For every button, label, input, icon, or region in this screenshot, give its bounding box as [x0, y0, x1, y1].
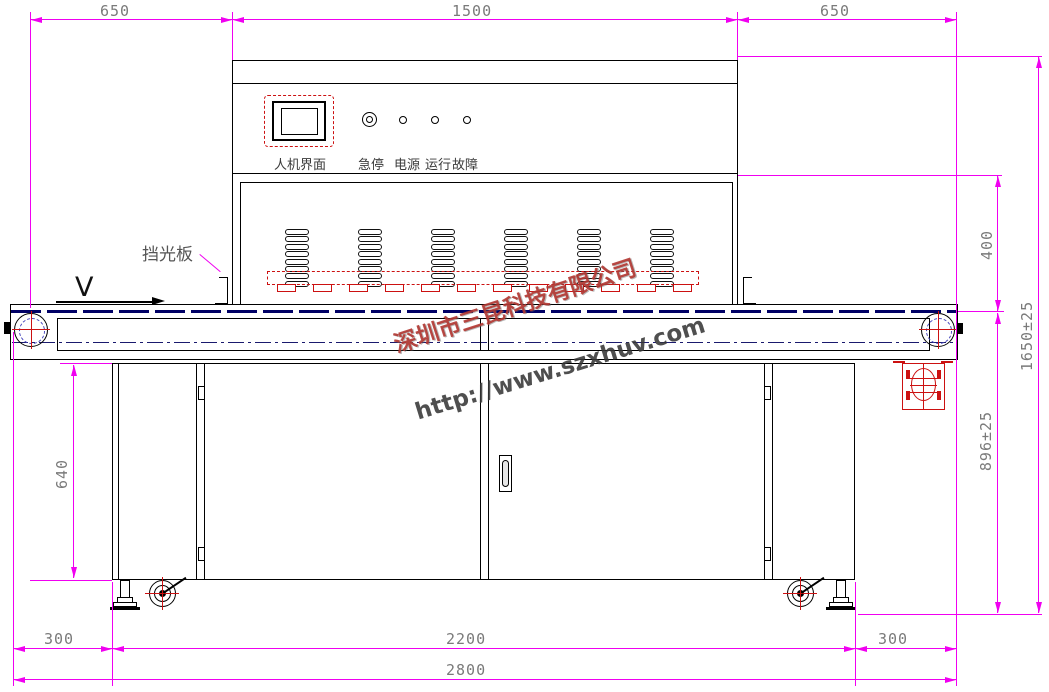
reflector-foot [349, 284, 368, 292]
run-label: 运行 [425, 154, 451, 173]
power-label: 电源 [394, 154, 420, 173]
estop-label: 急停 [358, 154, 384, 173]
hinge [764, 386, 771, 400]
power-indicator [399, 116, 407, 124]
estop-button-inner [366, 116, 373, 123]
light-shield-leader [199, 254, 220, 272]
hinge [764, 547, 771, 561]
fault-indicator [463, 116, 471, 124]
reflector-foot [637, 284, 656, 292]
conveyor-centerline [12, 342, 956, 343]
uv-curing-machine-drawing: 人机界面 急停 电源 运行 故障 挡光板 V [0, 0, 1049, 692]
direction-label: V [75, 272, 93, 303]
run-indicator [431, 116, 439, 124]
hinge [198, 547, 205, 561]
direction-arrow [56, 301, 154, 303]
light-shield-label: 挡光板 [142, 240, 193, 265]
reflector-foot [313, 284, 332, 292]
hinge [198, 386, 205, 400]
reflector-foot [457, 284, 476, 292]
hmi-label: 人机界面 [274, 154, 326, 173]
reflector-foot [421, 284, 440, 292]
reflector-foot [385, 284, 404, 292]
fault-label: 故障 [452, 154, 478, 173]
reflector-foot [673, 284, 692, 292]
reflector-foot [277, 284, 296, 292]
